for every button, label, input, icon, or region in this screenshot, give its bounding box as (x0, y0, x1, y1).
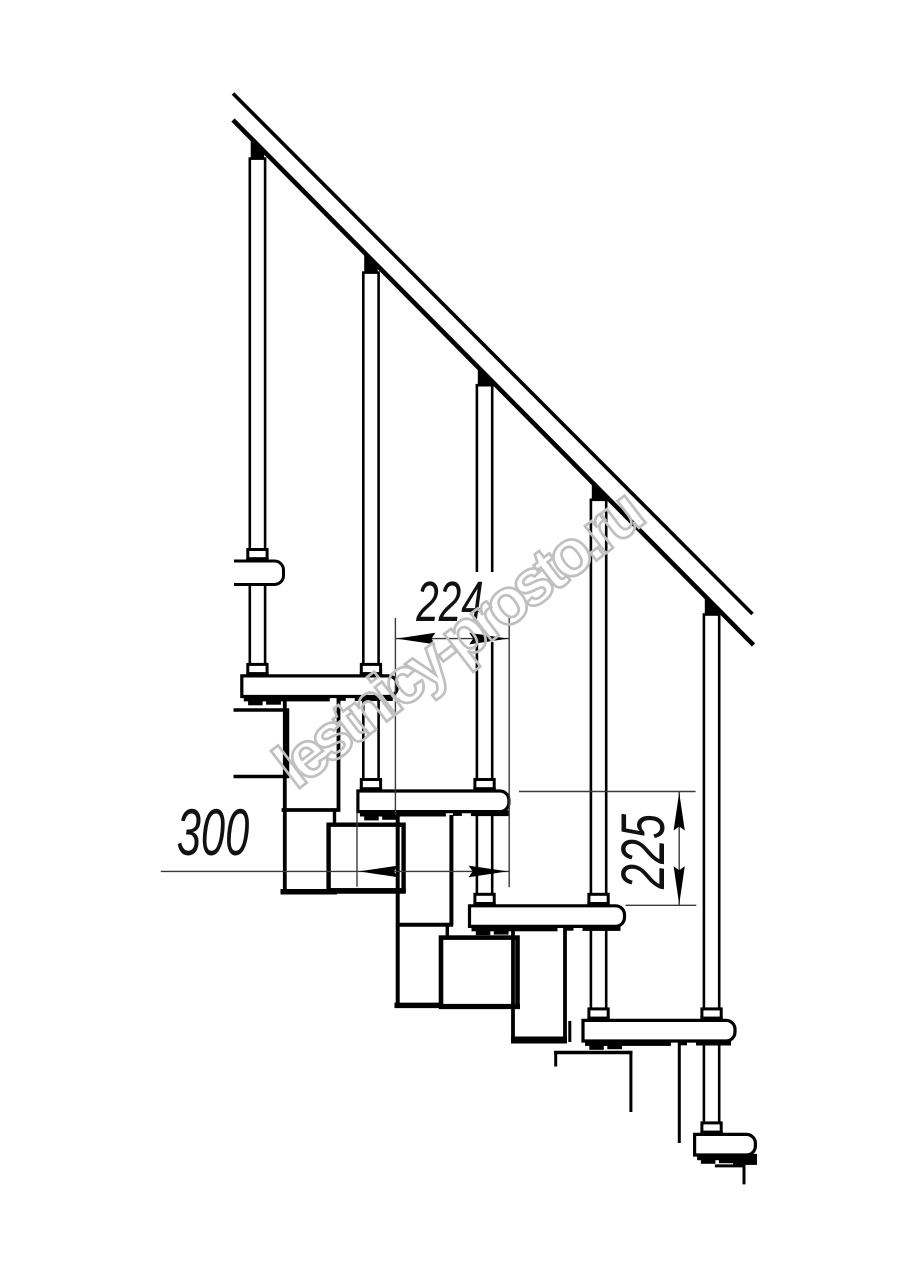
svg-text:300: 300 (177, 795, 250, 869)
svg-text:225: 225 (609, 813, 677, 890)
